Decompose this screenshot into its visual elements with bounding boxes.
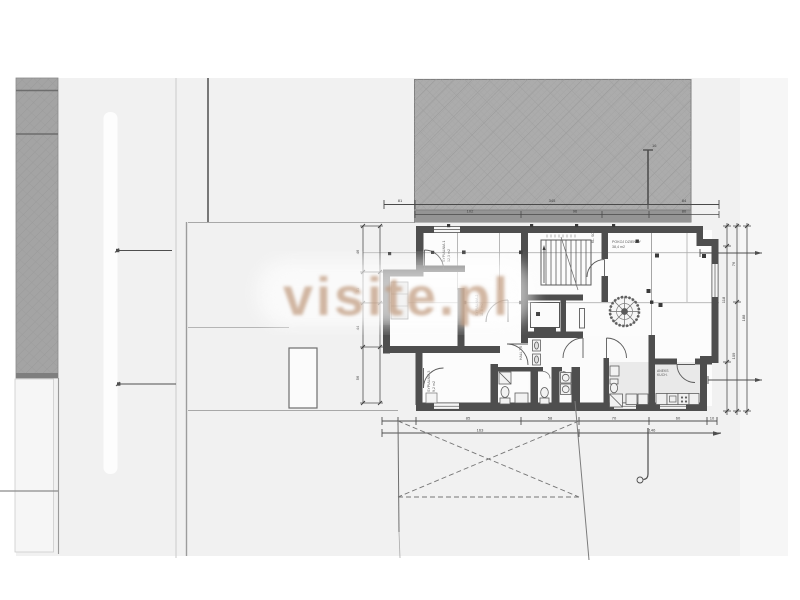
svg-text:163: 163 bbox=[477, 428, 484, 433]
svg-text:38,4 m2: 38,4 m2 bbox=[612, 245, 625, 249]
svg-text:188: 188 bbox=[741, 314, 746, 321]
svg-text:KL. SCH.: KL. SCH. bbox=[591, 229, 595, 243]
svg-text:KUCH.: KUCH. bbox=[657, 373, 668, 377]
svg-text:58: 58 bbox=[548, 416, 553, 421]
svg-text:102: 102 bbox=[467, 209, 474, 214]
svg-text:10: 10 bbox=[710, 416, 715, 421]
svg-text:109: 109 bbox=[731, 352, 736, 359]
svg-text:SYPIALNIA 3: SYPIALNIA 3 bbox=[427, 371, 431, 392]
svg-text:84: 84 bbox=[682, 198, 687, 203]
svg-text:146: 146 bbox=[649, 428, 656, 433]
svg-text:80: 80 bbox=[682, 209, 687, 214]
svg-text:96: 96 bbox=[573, 209, 578, 214]
svg-text:70: 70 bbox=[612, 416, 617, 421]
svg-text:visite.pl: visite.pl bbox=[283, 267, 511, 327]
svg-text:345: 345 bbox=[549, 198, 556, 203]
svg-text:81: 81 bbox=[398, 198, 403, 203]
svg-text:9,2 m2: 9,2 m2 bbox=[432, 381, 436, 392]
svg-text:16: 16 bbox=[652, 143, 657, 148]
svg-text:46: 46 bbox=[355, 249, 360, 254]
svg-text:118: 118 bbox=[721, 296, 726, 303]
svg-text:HALL 7,6: HALL 7,6 bbox=[519, 346, 523, 360]
svg-text:60: 60 bbox=[676, 416, 681, 421]
svg-text:56: 56 bbox=[355, 375, 360, 380]
svg-text:85: 85 bbox=[466, 416, 471, 421]
svg-text:76: 76 bbox=[731, 261, 736, 266]
